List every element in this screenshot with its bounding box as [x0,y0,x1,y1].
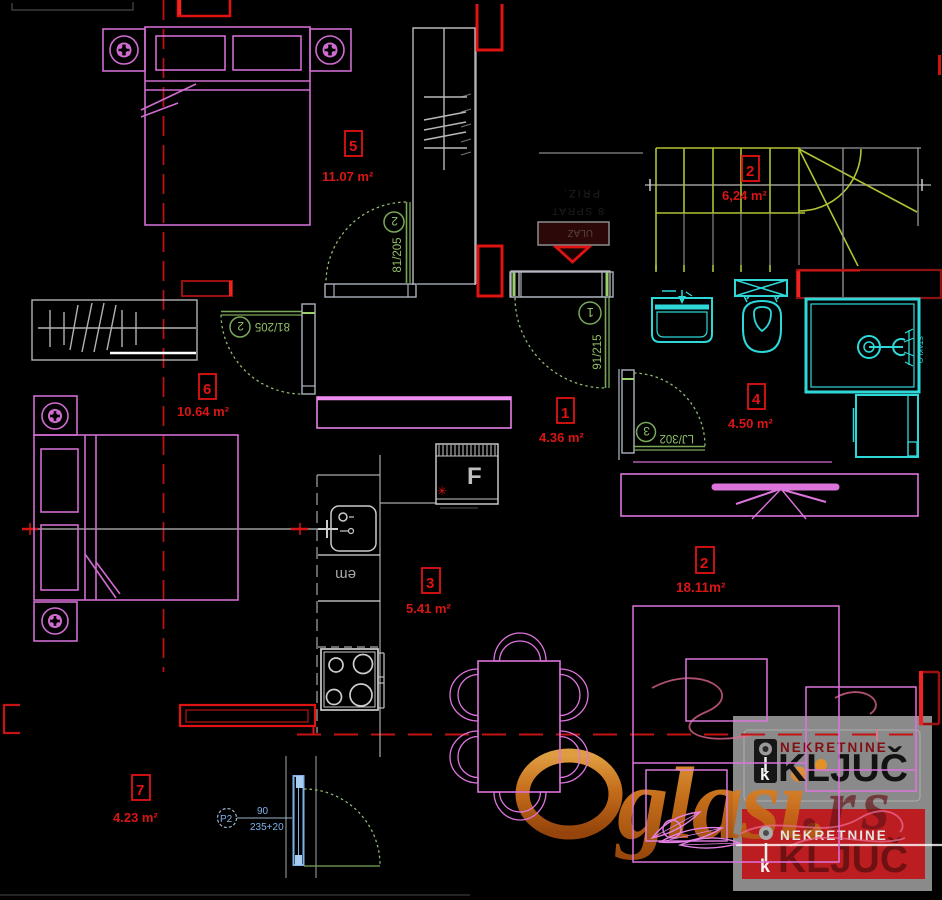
svg-text:4.50 m²: 4.50 m² [728,416,773,431]
svg-text:7: 7 [136,782,144,799]
svg-text:10.64 m²: 10.64 m² [177,404,230,419]
svg-text:2: 2 [700,555,708,572]
svg-text:ULAZ: ULAZ [567,227,593,238]
svg-text:em: em [335,566,356,583]
svg-text:P2: P2 [220,814,233,825]
svg-text:81/205: 81/205 [392,237,404,272]
svg-text:3: 3 [643,424,650,438]
svg-text:4.36 m²: 4.36 m² [539,430,584,445]
svg-text:6: 6 [203,381,211,398]
svg-text:11.07 m²: 11.07 m² [322,169,374,184]
svg-text:3: 3 [426,575,434,592]
svg-text:5.41 m²: 5.41 m² [406,601,451,616]
svg-text:2: 2 [746,163,754,180]
svg-text:k: k [760,765,770,784]
svg-text:STAKLO: STAKLO [916,336,923,364]
svg-text:1: 1 [587,305,594,320]
svg-text:F: F [467,463,482,490]
svg-text:✳: ✳ [437,484,447,498]
svg-text:1: 1 [561,405,569,422]
svg-text:k: k [760,856,771,876]
svg-text:LJ/302: LJ/302 [659,432,694,444]
svg-text:KLJUČ: KLJUČ [778,745,908,790]
svg-text:81/205: 81/205 [255,320,290,332]
svg-text:91/215: 91/215 [592,334,604,369]
svg-text:18.11m²: 18.11m² [676,580,726,595]
svg-text:8 SPRAT: 8 SPRAT [551,205,604,217]
svg-text:6,24 m²: 6,24 m² [722,188,767,203]
svg-text:90: 90 [257,806,269,817]
svg-text:2: 2 [391,214,398,228]
svg-text:PRIZ.: PRIZ. [562,187,600,199]
svg-text:2: 2 [237,319,244,333]
svg-text:4.23 m²: 4.23 m² [113,810,158,825]
svg-text:5: 5 [349,138,357,155]
svg-text:4: 4 [752,391,761,408]
svg-text:235+20: 235+20 [250,822,284,833]
